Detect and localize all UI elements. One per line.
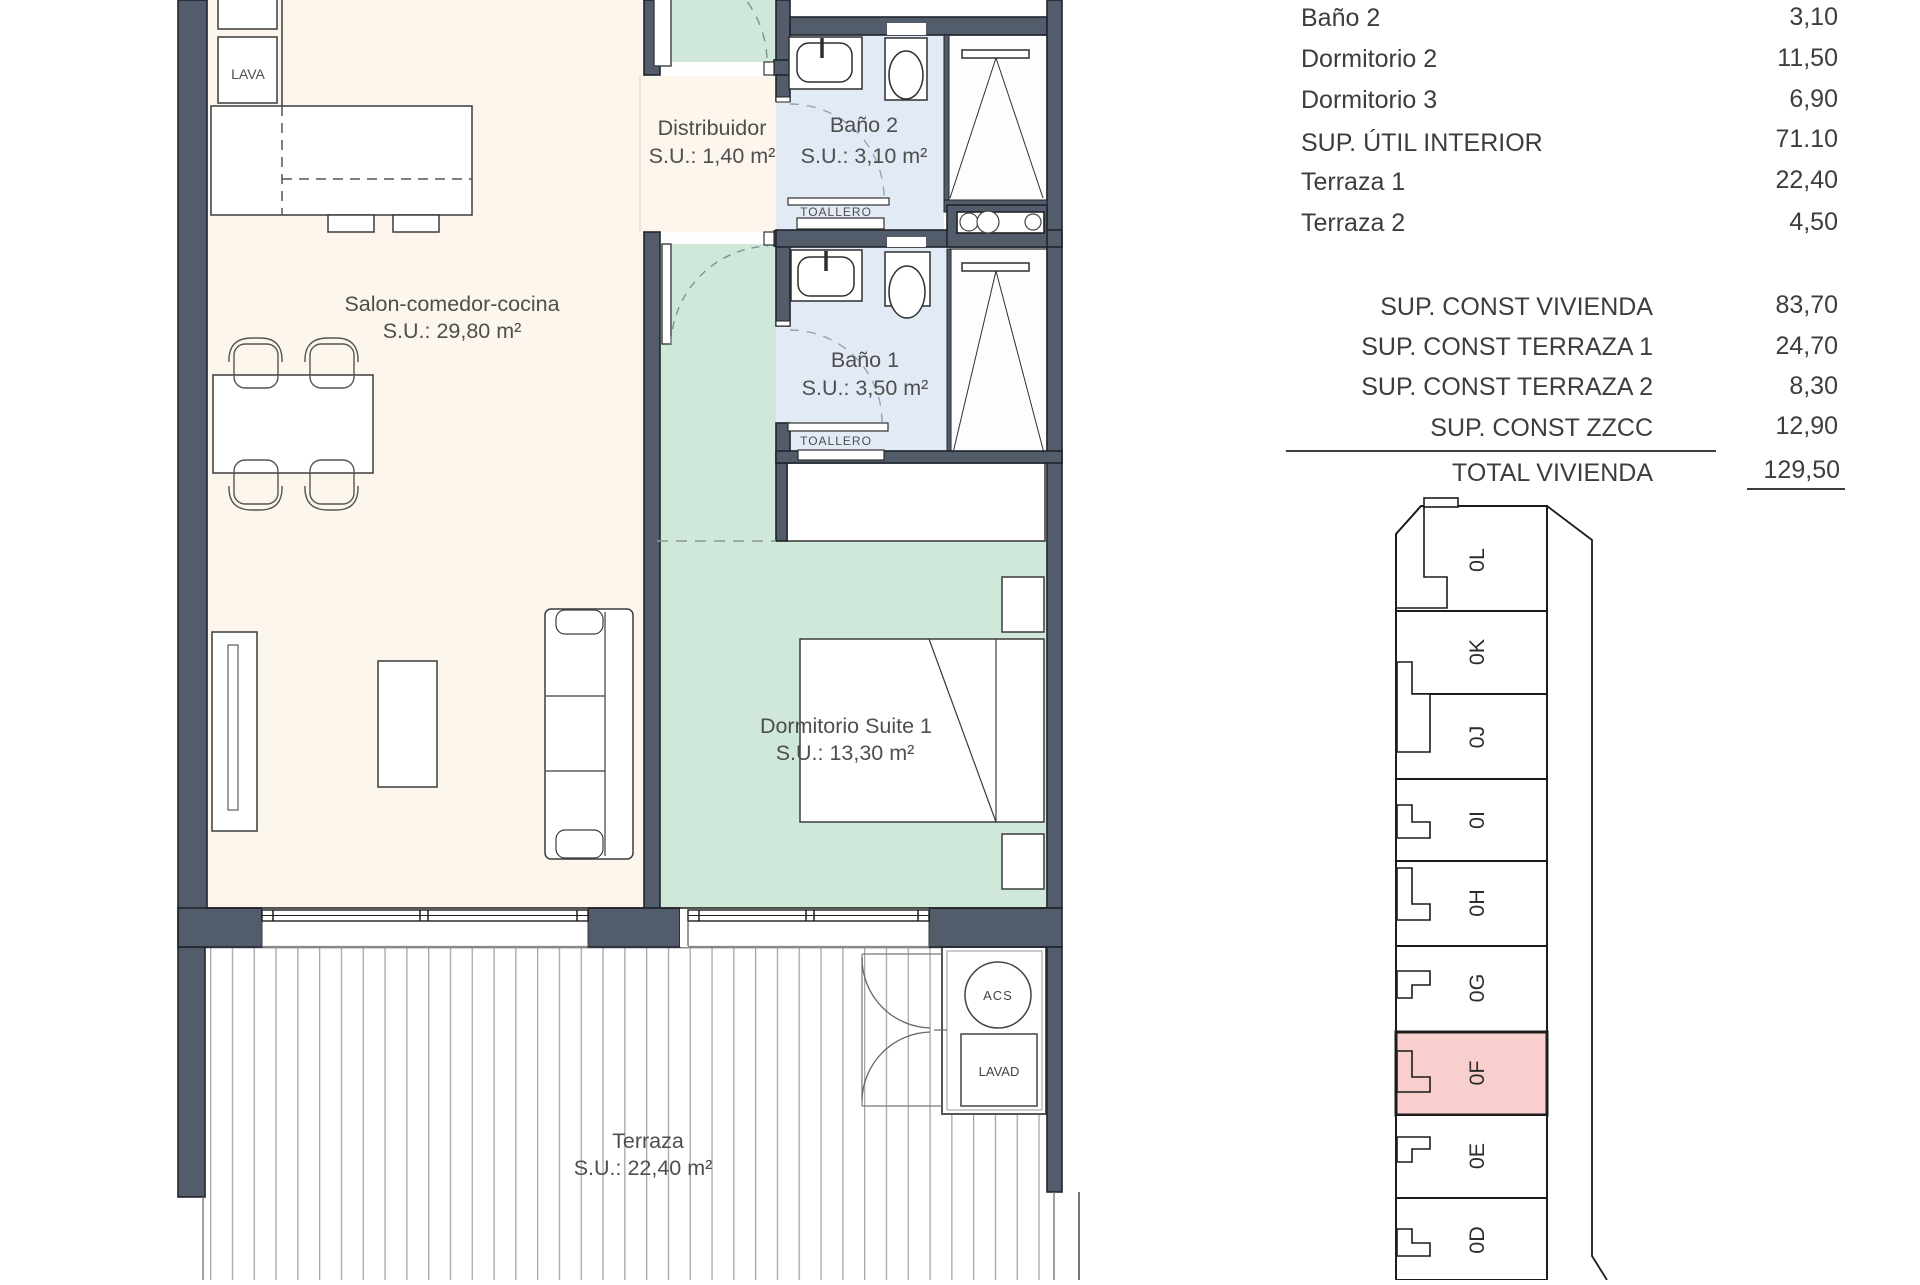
svg-text:SUP. CONST VIVIENDA: SUP. CONST VIVIENDA — [1380, 293, 1653, 321]
svg-text:0D: 0D — [1465, 1226, 1489, 1253]
svg-text:ACS: ACS — [983, 988, 1013, 1003]
svg-text:Baño 2: Baño 2 — [1301, 4, 1380, 32]
svg-text:TOALLERO: TOALLERO — [800, 434, 872, 448]
svg-text:Baño 1: Baño 1 — [831, 348, 899, 372]
svg-text:Baño 2: Baño 2 — [830, 113, 898, 137]
svg-text:0H: 0H — [1465, 889, 1489, 916]
svg-text:Terraza 1: Terraza 1 — [1301, 168, 1405, 196]
svg-text:SUP. CONST TERRAZA 2: SUP. CONST TERRAZA 2 — [1361, 373, 1653, 401]
svg-text:0F: 0F — [1465, 1060, 1489, 1085]
svg-text:SUP. ÚTIL INTERIOR: SUP. ÚTIL INTERIOR — [1301, 128, 1543, 157]
svg-text:0G: 0G — [1465, 974, 1489, 1003]
svg-text:11,50: 11,50 — [1777, 44, 1838, 72]
svg-text:Distribuidor: Distribuidor — [658, 116, 767, 140]
svg-text:S.U.: 3,50 m²: S.U.: 3,50 m² — [802, 376, 929, 400]
svg-text:Terraza 2: Terraza 2 — [1301, 209, 1405, 237]
svg-text:12,90: 12,90 — [1775, 412, 1838, 440]
svg-text:4,50: 4,50 — [1789, 208, 1838, 236]
svg-text:TOALLERO: TOALLERO — [800, 205, 872, 219]
svg-text:129,50: 129,50 — [1764, 456, 1840, 484]
svg-text:Dormitorio Suite 1: Dormitorio Suite 1 — [760, 714, 932, 738]
svg-text:Terraza: Terraza — [612, 1129, 684, 1153]
svg-text:8,30: 8,30 — [1789, 372, 1838, 400]
svg-text:83,70: 83,70 — [1775, 291, 1838, 319]
svg-text:0J: 0J — [1465, 726, 1489, 749]
svg-text:71.10: 71.10 — [1775, 125, 1838, 153]
svg-text:S.U.: 3,10 m²: S.U.: 3,10 m² — [801, 144, 928, 168]
svg-text:0I: 0I — [1465, 811, 1489, 829]
svg-text:Dormitorio 3: Dormitorio 3 — [1301, 86, 1437, 114]
svg-text:Dormitorio 2: Dormitorio 2 — [1301, 45, 1437, 73]
svg-text:S.U.: 29,80 m²: S.U.: 29,80 m² — [383, 319, 522, 343]
svg-text:SUP. CONST ZZCC: SUP. CONST ZZCC — [1430, 414, 1653, 442]
svg-text:0K: 0K — [1465, 638, 1489, 665]
svg-text:6,90: 6,90 — [1789, 85, 1838, 113]
svg-text:0E: 0E — [1465, 1143, 1489, 1169]
svg-text:S.U.: 1,40 m²: S.U.: 1,40 m² — [649, 144, 776, 168]
svg-text:Salon-comedor-cocina: Salon-comedor-cocina — [344, 292, 559, 316]
svg-text:LAVAD: LAVAD — [979, 1064, 1020, 1079]
svg-text:S.U.: 22,40 m²: S.U.: 22,40 m² — [574, 1156, 713, 1180]
svg-text:0L: 0L — [1465, 548, 1489, 572]
svg-text:LAVA: LAVA — [231, 66, 265, 82]
svg-text:TOTAL VIVIENDA: TOTAL VIVIENDA — [1452, 459, 1653, 487]
svg-text:S.U.: 13,30 m²: S.U.: 13,30 m² — [776, 741, 915, 765]
svg-text:24,70: 24,70 — [1775, 332, 1838, 360]
svg-text:3,10: 3,10 — [1789, 3, 1838, 31]
svg-text:SUP. CONST TERRAZA 1: SUP. CONST TERRAZA 1 — [1361, 333, 1653, 361]
svg-text:22,40: 22,40 — [1775, 166, 1838, 194]
